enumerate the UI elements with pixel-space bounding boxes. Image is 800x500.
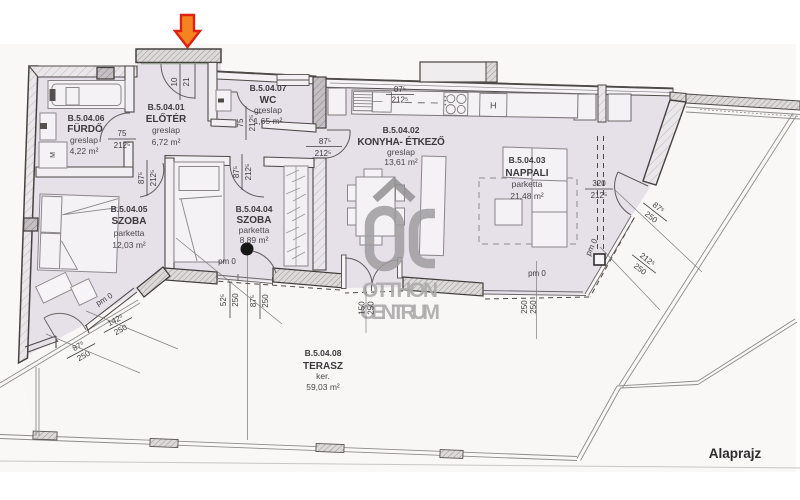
svg-text:ELŐTÉR: ELŐTÉR [146,112,187,125]
svg-text:B.5.04.06: B.5.04.06 [68,113,105,123]
svg-text:12,03 m²: 12,03 m² [112,240,146,250]
svg-text:greslap: greslap [254,105,282,115]
svg-text:212⁵: 212⁵ [315,149,332,158]
svg-text:21: 21 [182,77,191,86]
svg-text:M: M [50,152,57,158]
svg-text:ker.: ker. [316,371,330,381]
svg-text:B.5.04.02: B.5.04.02 [383,125,420,135]
svg-text:pm 0: pm 0 [528,269,546,278]
svg-text:H: H [490,100,497,110]
svg-text:Alaprajz: Alaprajz [709,446,762,461]
svg-text:212⁵: 212⁵ [149,170,158,187]
svg-text:87⁵: 87⁵ [137,172,146,184]
svg-text:greslap: greslap [387,147,415,157]
svg-text:1,65 m²: 1,65 m² [254,116,283,126]
svg-text:250: 250 [520,300,529,314]
svg-text:212⁵: 212⁵ [244,164,253,181]
svg-text:SZOBA: SZOBA [112,216,147,227]
svg-text:parketta: parketta [114,228,145,238]
svg-text:87⁵: 87⁵ [232,166,241,178]
svg-text:21,48 m²: 21,48 m² [510,191,544,201]
svg-text:pm 0: pm 0 [218,257,236,266]
svg-text:250: 250 [367,301,376,315]
svg-text:B.5.04.07: B.5.04.07 [250,83,287,93]
svg-text:greslap: greslap [70,135,98,145]
svg-text:4,22 m²: 4,22 m² [70,146,99,156]
svg-text:6,72 m²: 6,72 m² [152,137,181,147]
svg-text:52⁵: 52⁵ [219,294,228,306]
svg-text:212⁵: 212⁵ [114,141,131,150]
svg-text:10: 10 [170,77,179,86]
svg-text:B.5.04.08: B.5.04.08 [305,348,342,358]
svg-text:212⁵: 212⁵ [591,191,608,200]
svg-text:250: 250 [261,294,270,308]
svg-text:87⁵: 87⁵ [319,137,331,146]
svg-text:250: 250 [231,293,240,307]
svg-text:parketta: parketta [239,225,270,235]
svg-text:parketta: parketta [512,179,543,189]
svg-text:B.5.04.05: B.5.04.05 [111,204,148,214]
svg-text:150: 150 [358,301,367,315]
svg-text:B.5.04.04: B.5.04.04 [236,204,273,214]
svg-text:8,89 m²: 8,89 m² [240,235,269,245]
svg-text:OTTHON: OTTHON [362,279,438,302]
svg-text:87⁵: 87⁵ [394,85,406,94]
svg-text:320: 320 [592,179,606,188]
svg-text:greslap: greslap [152,125,180,135]
svg-text:NAPPALI: NAPPALI [505,168,548,179]
svg-text:B.5.04.03: B.5.04.03 [509,155,546,165]
svg-text:212⁵: 212⁵ [248,115,257,132]
svg-text:75: 75 [118,129,127,138]
svg-text:59,03 m²: 59,03 m² [306,382,340,392]
svg-text:13,61 m²: 13,61 m² [384,157,418,167]
svg-text:FÜRDŐ: FÜRDŐ [67,122,103,135]
svg-text:B.5.04.01: B.5.04.01 [148,102,185,112]
svg-text:75: 75 [236,118,245,127]
svg-text:212⁵: 212⁵ [392,96,409,105]
